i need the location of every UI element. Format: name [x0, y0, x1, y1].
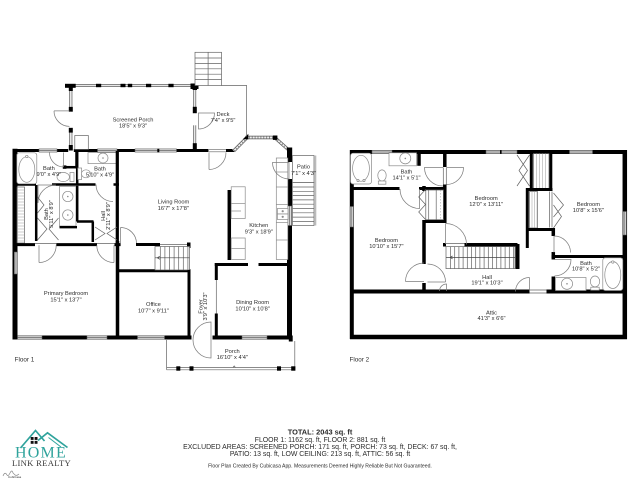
svg-text:CubiCasa: CubiCasa: [8, 475, 22, 479]
svg-text:12'0" x 13'11": 12'0" x 13'11": [469, 202, 503, 208]
svg-text:PATIO: 13 sq. ft, LOW CEILING:: PATIO: 13 sq. ft, LOW CEILING: 213 sq. f…: [230, 451, 410, 458]
svg-text:Kitchen: Kitchen: [249, 223, 268, 229]
svg-text:Primary Bedroom: Primary Bedroom: [44, 291, 89, 297]
svg-text:Dining Room: Dining Room: [236, 300, 269, 306]
svg-text:14'1" x 5'1": 14'1" x 5'1": [392, 176, 420, 182]
svg-text:3'9" x 10'3": 3'9" x 10'3": [203, 292, 209, 320]
svg-text:5'10" x 4'9": 5'10" x 4'9": [86, 172, 114, 178]
svg-text:9'3" x 18'9": 9'3" x 18'9": [245, 229, 273, 235]
svg-text:16'10" x 4'4": 16'10" x 4'4": [217, 355, 248, 361]
svg-text:10'8" x 15'6": 10'8" x 15'6": [573, 208, 604, 214]
svg-text:5'11" x 8'9": 5'11" x 8'9": [49, 200, 55, 228]
svg-text:7'4" x 9'5": 7'4" x 9'5": [211, 118, 236, 124]
svg-text:Floor 2: Floor 2: [350, 356, 370, 363]
svg-text:9'0" x 4'9": 9'0" x 4'9": [36, 172, 61, 178]
svg-text:Living Room: Living Room: [158, 199, 190, 205]
svg-text:Floor Plan Created By Cubicasa: Floor Plan Created By Cubicasa App. Meas…: [208, 464, 432, 470]
svg-text:Floor 1: Floor 1: [15, 356, 35, 363]
svg-text:15'1" x 13'7": 15'1" x 13'7": [50, 297, 81, 303]
svg-text:18'5" x 9'3": 18'5" x 9'3": [119, 123, 147, 129]
svg-text:16'7" x 17'8": 16'7" x 17'8": [158, 206, 189, 212]
svg-text:10'8" x 5'2": 10'8" x 5'2": [572, 267, 600, 273]
svg-text:LINK REALTY: LINK REALTY: [12, 458, 71, 468]
svg-text:EXCLUDED AREAS: SCREENED PORCH: EXCLUDED AREAS: SCREENED PORCH: 171 sq. …: [183, 444, 457, 451]
svg-text:7'1" x 4'3": 7'1" x 4'3": [291, 171, 316, 177]
svg-text:Patio: Patio: [297, 165, 310, 171]
svg-text:2'11" x 8'9": 2'11" x 8'9": [106, 202, 112, 230]
svg-text:10'7" x 9'11": 10'7" x 9'11": [138, 308, 169, 314]
svg-text:19'1" x 10'3": 19'1" x 10'3": [471, 281, 502, 287]
svg-text:TOTAL: 2043 sq. ft: TOTAL: 2043 sq. ft: [288, 428, 353, 437]
svg-text:10'10" x 15'7": 10'10" x 15'7": [369, 244, 403, 250]
svg-text:Office: Office: [146, 302, 161, 308]
svg-text:FLOOR 1: 1162 sq. ft, FLOOR 2:: FLOOR 1: 1162 sq. ft, FLOOR 2: 881 sq. f…: [255, 437, 386, 444]
svg-text:Porch: Porch: [225, 349, 240, 355]
svg-text:10'10" x 10'8": 10'10" x 10'8": [235, 306, 269, 312]
svg-text:Bath: Bath: [401, 169, 413, 175]
svg-text:41'3" x 6'6": 41'3" x 6'6": [477, 316, 505, 322]
